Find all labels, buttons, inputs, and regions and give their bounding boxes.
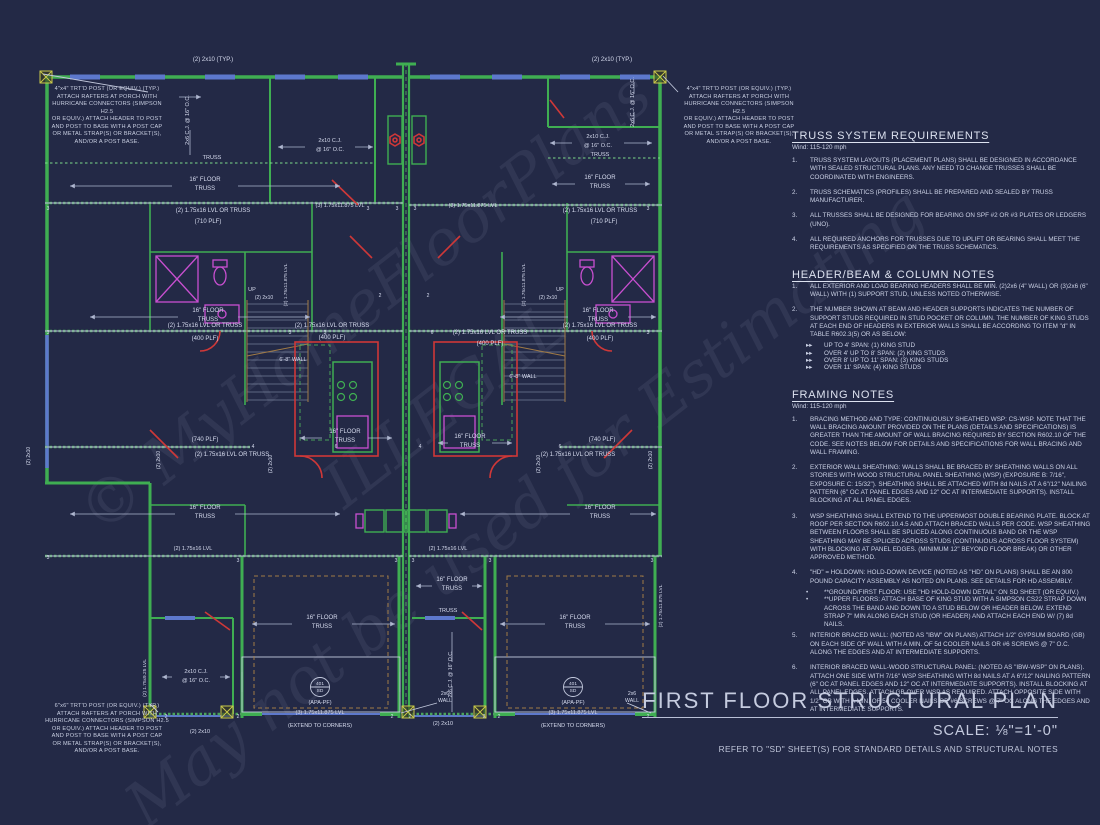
plan-label: TRUSS [312,624,332,630]
sheet-scale: SCALE: ⅛"=1'-0" [642,723,1058,739]
plan-label: (2) 2x10 (TYP.) [592,57,632,63]
plan-label: (710 PLF) [591,219,618,225]
plan-label: 6 [431,330,434,336]
plan-label: 2x6 C.J. @ 16" O.C. [630,77,636,127]
post-note-line: ATTACH RAFTERS AT PORCH WITH [46,94,168,102]
post-note-line: AND POST TO BASE WITH A POST CAP [46,124,168,132]
post-note-line: OR EQUIV.) ATTACH HEADER TO POST [678,116,800,124]
unit-right-walls [409,77,662,718]
plan-label: TRUSS [442,586,462,592]
sheet-canvas: © MyHomeFloorPlansILLEGALMay not be used… [0,0,1100,825]
plan-label: 3 [367,206,370,212]
post-note-line: AND POST TO BASE WITH A POST CAP [44,733,170,741]
plan-label: 3 [651,558,654,564]
note-item-text: TRUSS SYSTEM LAYOUTS (PLACEMENT PLANS) S… [810,157,1092,182]
post-note-line: AND/OR A POST BASE. [46,139,168,147]
note-item-marker: • [806,596,818,629]
note-item: •**UPPER FLOORS: ATTACH BASE OF KING STU… [806,596,1092,629]
plan-label: 2 [427,293,430,299]
notes-heading: HEADER/BEAM & COLUMN NOTES [792,269,1092,281]
plan-label: (400 PLF) [477,341,504,347]
plan-label: 16" FLOOR [454,434,486,440]
plan-label: (2) 2x10 [26,447,32,466]
note-item-marker: 4. [792,569,804,586]
post-note-line: OR METAL STRAP(S) OR BRACKET(S), [678,131,800,139]
note-item-text: INTERIOR BRACED WALL: (NOTED AS "IBW" ON… [810,632,1092,657]
plan-label: (2) 1.75x16 LVL OR TRUSS [195,452,270,458]
plan-label: TRUSS [195,514,215,520]
plan-label: 2x6 [441,691,449,697]
plan-label: (3) 1.75x11.875 LVL [448,203,497,209]
plan-label: TRUSS [591,152,610,158]
notes-column: TRUSS SYSTEM REQUIREMENTSWind: 115-120 m… [792,130,1092,730]
detail-callouts [242,672,583,697]
notes-subheading: Wind: 115-120 mph [792,144,1092,151]
plan-label: (2) 2x10 [648,451,654,470]
plan-label: 3 [414,206,417,212]
note-item-text: EXTERIOR WALL SHEATHING: WALLS SHALL BE … [810,464,1092,505]
plan-label: (2) 1.75x16 LVL OR TRUSS [541,452,616,458]
plan-label: 6'-8" WALL [509,374,536,380]
plan-label: (2) 1.75x16 LVL [174,546,213,552]
plan-label: 2 [498,714,501,720]
note-item: 4."HD" = HOLDOWN: HOLD-DOWN DEVICE (NOTE… [792,569,1092,586]
plan-label: 16" FLOOR [189,505,221,511]
party-wall-fireplaces [388,116,426,164]
post-note-line: 4"x4" TRT'D POST (OR EQUIV.) (TYP.) [46,86,168,94]
note-item-text: ALL REQUIRED ANCHORS FOR TRUSSES DUE TO … [810,236,1092,253]
note-item-text: ALL TRUSSES SHALL BE DESIGNED FOR BEARIN… [810,212,1092,229]
note-item-marker: 3. [792,212,804,229]
plan-label: 2x10 C.J. [184,669,208,675]
plan-label: 4 [419,444,422,450]
plan-label: 6 [335,444,338,450]
plan-label: @ 16" O.C. [182,678,210,684]
plan-label: 3 [289,330,292,336]
note-item-marker: 3. [792,513,804,563]
note-item-text: BRACING METHOD AND TYPE: CONTINUOUSLY SH… [810,416,1092,457]
note-item: 1.TRUSS SYSTEM LAYOUTS (PLACEMENT PLANS)… [792,157,1092,182]
plan-label: (3) 1.75x11.875 LVL [295,710,344,716]
plan-label: 401 [569,681,577,687]
braced-wall-marks [150,100,632,630]
plan-label: 3 [47,206,50,212]
plan-label: 16" FLOOR [436,577,468,583]
note-item: 3.WSP SHEATHING SHALL EXTEND TO THE UPPE… [792,513,1092,563]
plan-label: TRUSS [565,624,585,630]
plan-label: TRUSS [590,514,610,520]
plan-label: (2) 1.75x11.875 LVL [283,263,289,306]
note-item: 1.ALL EXTERIOR AND LOAD BEARING HEADERS … [792,283,1092,300]
notes-section: TRUSS SYSTEM REQUIREMENTSWind: 115-120 m… [792,130,1092,253]
plan-label: (2) 1.75x16 LVL OR TRUSS [563,323,638,329]
plan-label: 16" FLOOR [582,308,614,314]
plan-label: 16" FLOOR [559,615,591,621]
notes-subheading: Wind: 115-120 mph [792,403,1092,410]
note-item-text: TRUSS SCHEMATICS (PROFILES) SHALL BE PRE… [810,189,1092,206]
note-item-marker: 1. [792,157,804,182]
plan-label: (740 PLF) [192,437,219,443]
note-item: ▸▸OVER 11' SPAN: (4) KING STUDS [806,364,1092,372]
post-note-line: HURRICANE CONNECTORS (SIMPSON H2.5 [678,101,800,116]
plan-label: UP [556,287,564,293]
note-item-text: THE NUMBER SHOWN AT BEAM AND HEADER SUPP… [810,306,1092,339]
plan-label: (2) 2x10 [268,455,274,474]
note-item-marker: 5. [792,632,804,657]
plan-label: 2 [237,714,240,720]
notes-section: FRAMING NOTESWind: 115-120 mph1.BRACING … [792,389,1092,715]
plan-label: 2 [379,293,382,299]
plan-label: (400 PLF) [192,336,219,342]
plan-label: 2x6 C.J. @ 16" O.C. [185,95,191,145]
plan-label: @ 16" O.C. [316,147,344,153]
post-note-line: OR EQUIV.) ATTACH HEADER TO POST [46,116,168,124]
plan-label: (2) 2x10 [190,729,210,735]
plan-label: (400 PLF) [587,336,614,342]
note-item-text: OVER 11' SPAN: (4) KING STUDS [824,364,921,372]
plan-label: (710 PLF) [195,219,222,225]
plan-label: TRUSS [590,184,610,190]
plan-label: 2 [483,714,486,720]
plan-label: (APA-PF) [308,700,331,706]
plan-label: 6 [559,444,562,450]
plan-label: (3) 1.75x11.875 LVL [315,203,364,209]
note-item-text: "HD" = HOLDOWN: HOLD-DOWN DEVICE (NOTED … [810,569,1092,586]
plan-labels: (2) 2x10 (TYP.)(2) 2x10 (TYP.)TRUSS16" F… [26,57,664,735]
title-block: FIRST FLOOR STRUCTURAL PLAN SCALE: ⅛"=1'… [642,688,1058,754]
note-item: 5.INTERIOR BRACED WALL: (NOTED AS "IBW" … [792,632,1092,657]
notes-section: HEADER/BEAM & COLUMN NOTES1.ALL EXTERIOR… [792,269,1092,373]
note-item-marker: 2. [792,464,804,505]
sheet-title: FIRST FLOOR STRUCTURAL PLAN [642,688,1058,718]
plan-label: (2) 2x10 [255,295,274,301]
note-item-text: **UPPER FLOORS: ATTACH BASE OF KING STUD… [824,596,1092,629]
post-note-line: AND POST TO BASE WITH A POST CAP [678,124,800,132]
plan-label: 16" FLOOR [306,615,338,621]
plan-label: WALL [625,698,639,704]
plan-label: UP [248,287,256,293]
plan-label: SD [317,688,324,694]
plan-label: 16" FLOOR [584,175,616,181]
plan-label: 16" FLOOR [189,177,221,183]
plan-label: (2) 1.75x16 LVL OR TRUSS [453,330,528,336]
plan-label: (2) 2x10 (TYP.) [193,57,233,63]
post-note-line: OR METAL STRAP(S) OR BRACKET(S), [44,741,170,749]
plan-label: TRUSS [335,438,355,444]
plan-label: 16" FLOOR [329,429,361,435]
plan-label: 3 [237,558,240,564]
plan-label: (740 PLF) [589,437,616,443]
notes-heading: FRAMING NOTES [792,389,1092,401]
post-note-line: ATTACH RAFTERS AT PORCH WITH [678,94,800,102]
note-item-text: WSP SHEATHING SHALL EXTEND TO THE UPPERM… [810,513,1092,563]
plan-label: 3 [647,330,650,336]
stairs-right [504,300,565,402]
note-item-text: ALL EXTERIOR AND LOAD BEARING HEADERS SH… [810,283,1092,300]
plan-label: 2 [409,714,412,720]
plan-label: WALL [438,698,452,704]
plan-label: 6'-8" WALL [279,357,306,363]
plan-label: (APA-PF) [561,700,584,706]
plan-label: TRUSS [439,608,458,614]
post-note-line: OR EQUIV.) ATTACH HEADER TO POST [44,726,170,734]
post-note-line: HURRICANE CONNECTORS (SIMPSON H2.5 [44,718,170,726]
post-note-top-left: 4"x4" TRT'D POST (OR EQUIV.) (TYP.)ATTAC… [46,86,168,146]
plan-label: 3 [396,206,399,212]
post-note-line: 6"x6" TRT'D POST (OR EQUIV.) (TYP.) [44,703,170,711]
plan-label: 3 [47,330,50,336]
post-note-line: AND/OR A POST BASE. [678,139,800,147]
plan-label: (2) 2x10 [539,295,558,301]
note-item-marker: 1. [792,416,804,457]
plan-label: 3 [47,555,50,561]
plan-label: (EXTEND TO CORNERS) [541,723,605,729]
note-item: 2.EXTERIOR WALL SHEATHING: WALLS SHALL B… [792,464,1092,505]
note-item-marker: 4. [792,236,804,253]
plan-label: 3 [395,558,398,564]
note-item: 1.BRACING METHOD AND TYPE: CONTINUOUSLY … [792,416,1092,457]
plan-label: (2) 1.75x16 LVL OR TRUSS [563,208,638,214]
note-item: 3.ALL TRUSSES SHALL BE DESIGNED FOR BEAR… [792,212,1092,229]
plan-label: 2x10 C.J. [318,138,342,144]
plan-label: (2) 2x10 [433,721,453,727]
sheet-refer-note: REFER TO "SD" SHEET(S) FOR STANDARD DETA… [642,744,1058,754]
plan-label: TRUSS [203,155,222,161]
plan-label: 2 [391,714,394,720]
plan-label: (3) 1.75x11.875 LVL [548,710,597,716]
plan-label: (EXTEND TO CORNERS) [288,723,352,729]
post-note-bottom-left: 6"x6" TRT'D POST (OR EQUIV.) (TYP.)ATTAC… [44,703,170,756]
plan-label: (2) 1.75x16 LVL OR TRUSS [176,208,251,214]
note-item-marker: 2. [792,306,804,339]
plan-label: TRUSS [195,186,215,192]
post-note-top-right: 4"x4" TRT'D POST (OR EQUIV.) (TYP.)ATTAC… [678,86,800,146]
post-note-line: 4"x4" TRT'D POST (OR EQUIV.) (TYP.) [678,86,800,94]
plan-label: 16" FLOOR [584,505,616,511]
post-note-line: HURRICANE CONNECTORS (SIMPSON H2.5 [46,101,168,116]
plan-label: TRUSS [460,443,480,449]
note-item: 2.TRUSS SCHEMATICS (PROFILES) SHALL BE P… [792,189,1092,206]
plan-label: (2) 1.75x11.875 LVL [658,584,664,627]
plan-label: 2x10 C.J. [586,134,610,140]
plan-label: 2x6 [628,691,636,697]
plan-label: 3 [489,558,492,564]
plan-label: 3 [412,558,415,564]
plan-label: (2) 2x10 [156,451,162,470]
plan-label: 16" FLOOR [192,308,224,314]
stairs-left [247,300,308,402]
plan-label: @ 16" O.C. [584,143,612,149]
post-note-line: OR METAL STRAP(S) OR BRACKET(S), [46,131,168,139]
plan-label: 3 [647,206,650,212]
post-note-line: AND/OR A POST BASE. [44,748,170,756]
plan-label: 3 [324,330,327,336]
post-note-line: ATTACH RAFTERS AT PORCH WITH [44,711,170,719]
note-item: 4.ALL REQUIRED ANCHORS FOR TRUSSES DUE T… [792,236,1092,253]
plan-label: (2) 1.75x9.25 LVL [142,659,148,697]
plan-label: (2) 2x10 [536,455,542,474]
plan-label: (2) 1.75x16 LVL OR TRUSS [295,323,370,329]
note-item: 2.THE NUMBER SHOWN AT BEAM AND HEADER SU… [792,306,1092,339]
plan-label: (2) 1.75x16 LVL [429,546,468,552]
plan-label: 4 [252,444,255,450]
note-item-marker: ▸▸ [806,364,818,372]
note-item-marker: 2. [792,189,804,206]
plan-label: (2) 1.75x11.875 LVL [521,263,527,306]
beams [45,203,662,714]
note-item-marker: 1. [792,283,804,300]
plan-label: 401 [316,681,324,687]
notes-heading: TRUSS SYSTEM REQUIREMENTS [792,130,1092,142]
plan-label: SD [570,688,577,694]
plan-label: (2) 1.75x16 LVL OR TRUSS [168,323,243,329]
